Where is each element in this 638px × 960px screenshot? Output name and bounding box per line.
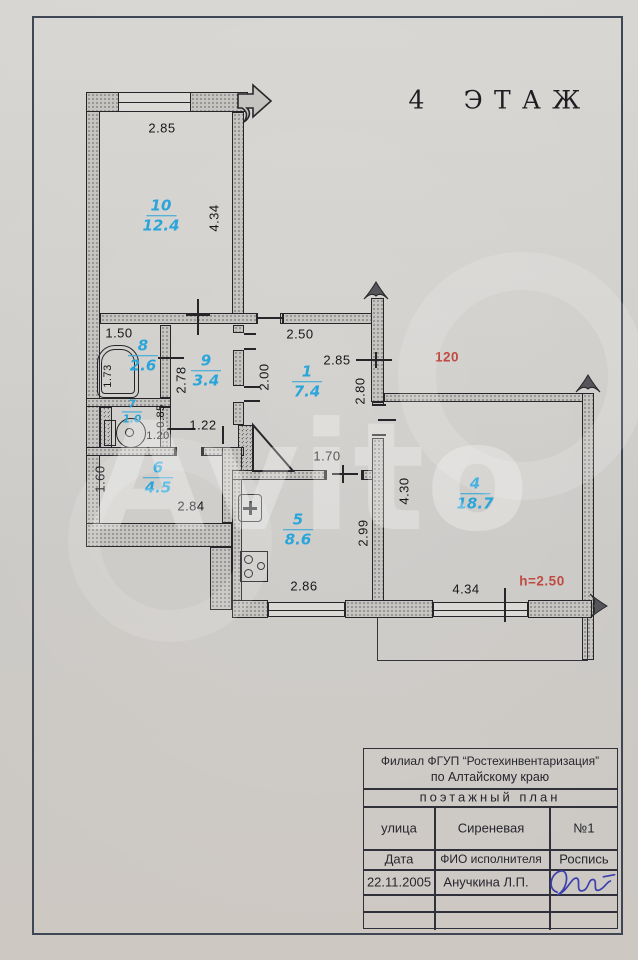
title-block-line [364, 911, 617, 913]
dimension-label: 2.80 [353, 377, 368, 404]
wall-bottom-c [528, 600, 592, 618]
floor-plan-photo: 4 ЭТАЖ [0, 0, 638, 960]
house-number: №1 [573, 821, 594, 836]
room-number: 4 [460, 475, 490, 494]
wall-break-arrow [588, 592, 608, 620]
wall-step-exterior [210, 547, 232, 610]
room-label: 10 12.4 [142, 197, 179, 235]
dimension-label: 2.85 [148, 121, 175, 136]
title-block-line [434, 806, 436, 930]
window [433, 602, 528, 617]
room-number: 7 [122, 398, 142, 412]
dimension-tick [222, 426, 224, 444]
door-jamb [372, 434, 386, 436]
street-label: улица [381, 821, 417, 836]
wall-room6-top-left [86, 447, 175, 456]
wall-kitchen-left [232, 473, 242, 603]
executor-value: Анучкина Л.П. [443, 875, 528, 890]
door-threshold [256, 317, 284, 319]
door-jamb [244, 348, 256, 350]
balcony-outline [377, 617, 588, 661]
ceiling-height-annotation: h=2.50 [519, 574, 564, 589]
wall-break-arrow [362, 281, 390, 301]
wall-top-left [86, 92, 120, 112]
sink-icon [238, 494, 262, 522]
org-name-line2: по Алтайскому краю [431, 770, 549, 784]
dimension-label: 1.70 [313, 449, 340, 464]
dimension-tick [504, 588, 506, 622]
window [118, 92, 192, 112]
apartment-number-annotation: 120 [435, 350, 459, 365]
room-area: 7.4 [292, 383, 322, 401]
room-area: 4.5 [143, 479, 173, 497]
room-area: 1.0 [122, 413, 142, 426]
room-label: 5 8.6 [283, 511, 313, 549]
signature [546, 861, 616, 901]
dimension-tick [332, 473, 358, 475]
dimension-label: 4.34 [207, 204, 222, 231]
wall-mid-left [100, 313, 258, 324]
wall-break-arrow [238, 84, 274, 126]
room-area: 8.6 [283, 531, 313, 549]
room-number: 6 [143, 459, 173, 478]
door-jamb [372, 404, 386, 406]
window [268, 602, 345, 617]
stove-icon [240, 551, 268, 582]
dimension-label: 1.20 [146, 430, 169, 442]
wall-bottom-a [232, 600, 268, 618]
dimension-tick [375, 352, 377, 368]
door-jamb [244, 400, 260, 402]
room-label: 1 7.4 [292, 363, 322, 401]
door-jamb [201, 447, 203, 456]
wall-landing [371, 298, 384, 402]
door-jamb [361, 470, 363, 480]
title-block-line [364, 806, 617, 808]
room-area: 2.6 [128, 357, 158, 375]
date-label: Дата [385, 852, 414, 867]
dimension-tick [197, 299, 199, 335]
date-value: 22.11.2005 [367, 875, 431, 890]
room-number: 10 [146, 197, 176, 216]
dimension-label: 2.86 [290, 579, 317, 594]
executor-label: ФИО исполнителя [440, 852, 542, 866]
room-label: 6 4.5 [143, 459, 173, 497]
dimension-tick [342, 465, 344, 483]
floor-title: 4 ЭТАЖ [409, 86, 592, 115]
dimension-label: 4.34 [452, 582, 479, 597]
dimension-label: 2.84 [177, 499, 204, 514]
room-label: 9 3.4 [191, 352, 221, 390]
room-area: 18.7 [456, 495, 493, 513]
dimension-tick [158, 357, 184, 359]
wall-room6-bottom [86, 523, 232, 547]
wall-hall-b [233, 350, 244, 386]
dimension-tick [378, 419, 396, 421]
pantry-triangle [252, 424, 294, 474]
dimension-label: 2.85 [323, 353, 350, 368]
dimension-label: 0.85 [155, 404, 167, 427]
dimension-label: 2.50 [286, 327, 313, 342]
room-number: 9 [191, 352, 221, 371]
org-name-line1: Филиал ФГУП “Ростехинвентаризация” [381, 754, 599, 768]
street-value: Сиреневая [458, 821, 525, 836]
dimension-tick [186, 314, 210, 316]
door-jamb [175, 447, 177, 456]
wall-mid-right [280, 313, 373, 324]
door-jamb [325, 470, 327, 480]
dimension-label: 1.22 [189, 418, 216, 433]
room-area: 12.4 [142, 217, 179, 235]
door-jamb [244, 333, 256, 335]
room-area: 3.4 [191, 372, 221, 390]
room-label: 8 2.6 [128, 337, 158, 375]
room-number: 1 [292, 363, 322, 382]
room-label: 7 1.0 [122, 398, 142, 425]
wall-hall-c [233, 402, 244, 425]
dimension-label: 1.50 [105, 326, 132, 341]
dimension-label: 1.60 [93, 465, 108, 492]
wall-break-arrow [574, 374, 602, 394]
title-block-line [364, 849, 617, 851]
toilet-icon [125, 428, 134, 437]
document-type: поэтажный план [420, 790, 561, 805]
title-block: Филиал ФГУП “Ростехинвентаризация” по Ал… [363, 748, 618, 929]
wall-bottom-b [345, 600, 433, 618]
room-number: 5 [283, 511, 313, 530]
dimension-label: 4.30 [397, 477, 412, 504]
dimension-label: 2.78 [174, 366, 189, 393]
room-label: 4 18.7 [456, 475, 493, 513]
dimension-label: 2.00 [257, 363, 272, 390]
wall-bath-divider [160, 325, 171, 398]
wall-room10-right [232, 112, 244, 324]
dimension-label: 1.73 [102, 364, 114, 387]
wall-room4-left-b [372, 438, 384, 602]
toilet-icon [104, 420, 116, 446]
dimension-tick [356, 359, 392, 361]
dimension-label: 2.99 [356, 519, 371, 546]
wall-hall-a [233, 325, 244, 333]
wall-room4-top [384, 393, 592, 402]
